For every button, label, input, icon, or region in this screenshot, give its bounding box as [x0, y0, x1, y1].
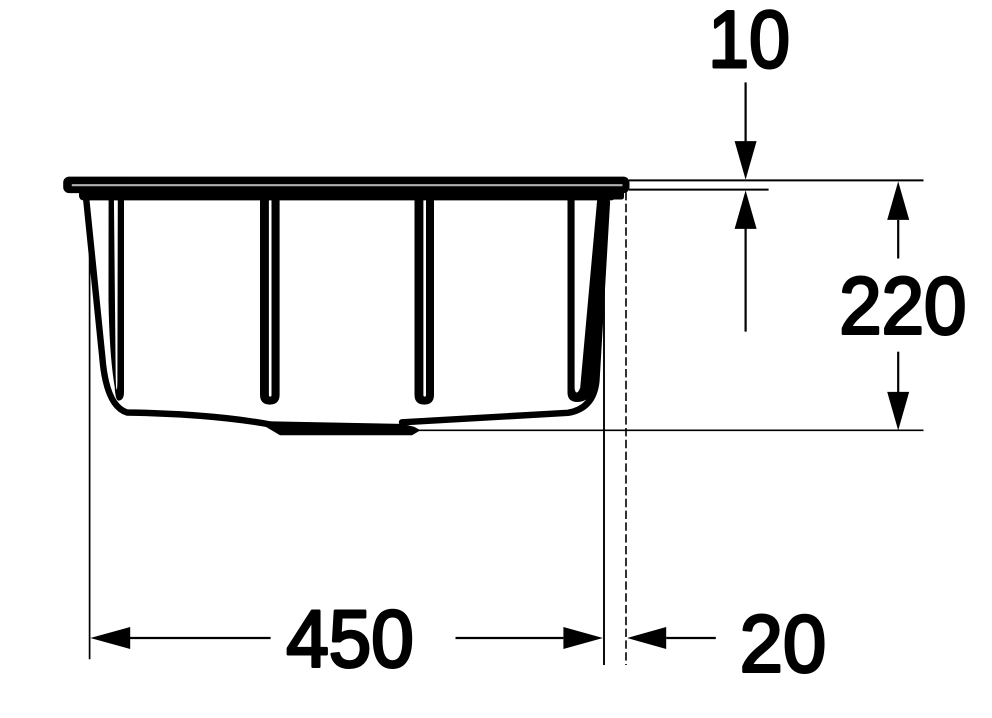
svg-text:20: 20: [740, 599, 826, 689]
svg-text:450: 450: [286, 595, 414, 685]
svg-text:220: 220: [839, 262, 966, 352]
svg-text:10: 10: [708, 0, 790, 85]
